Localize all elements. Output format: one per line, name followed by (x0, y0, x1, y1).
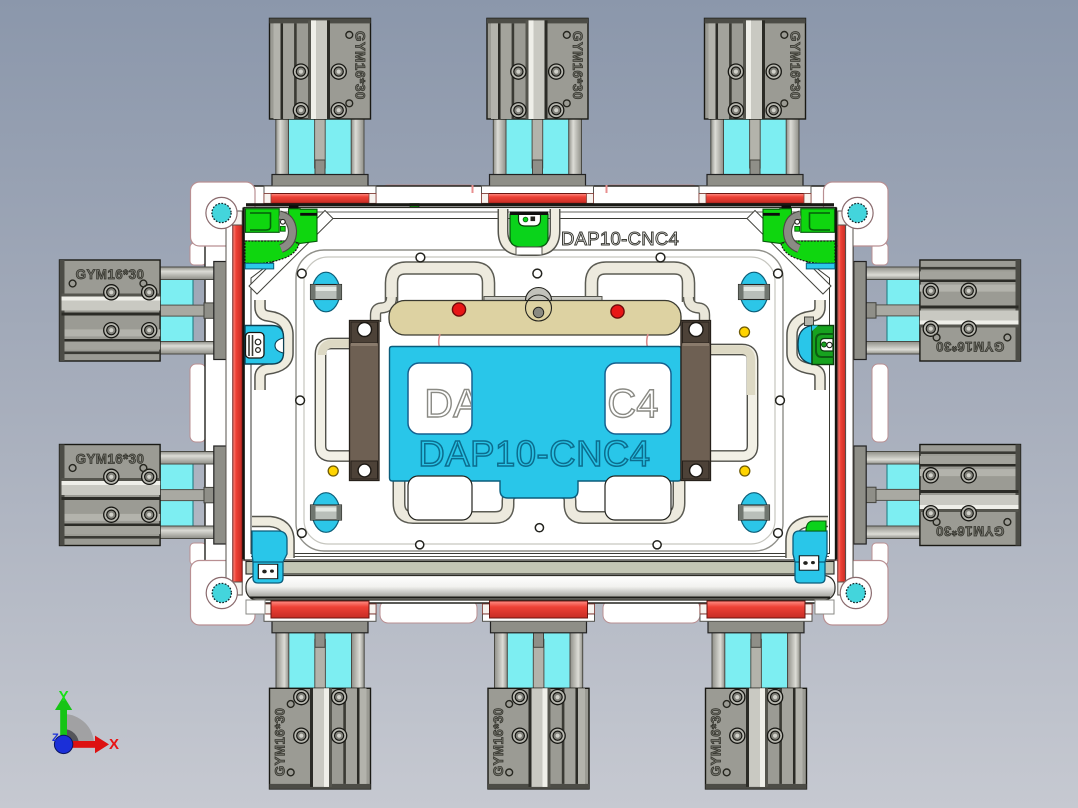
svg-text:C4: C4 (607, 382, 658, 426)
svg-text:DAP10-CNC4: DAP10-CNC4 (561, 228, 679, 249)
svg-text:Y: Y (59, 688, 69, 705)
svg-text:Z: Z (52, 732, 59, 744)
svg-text:X: X (109, 736, 119, 753)
svg-text:DAP10-CNC4: DAP10-CNC4 (418, 433, 650, 474)
